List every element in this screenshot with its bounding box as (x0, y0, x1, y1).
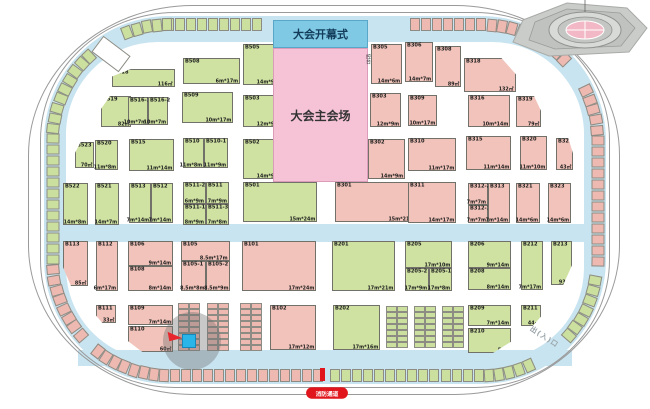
perimeter-stall (591, 146, 604, 156)
perimeter-stall (452, 369, 462, 382)
perimeter-stall (175, 18, 185, 31)
booth-B305[interactable]: B30514m*6m (371, 44, 402, 84)
booth-code: B211 (523, 305, 538, 311)
booth-B511[interactable]: B5117m*9m (206, 182, 229, 204)
perimeter-stall (591, 223, 604, 233)
booth-dimensions: 70㎡ (81, 161, 92, 168)
booth-code: B513 (131, 183, 146, 189)
stall-cell (425, 342, 436, 348)
booth-code: B316 (470, 95, 485, 101)
perimeter-stall (162, 18, 172, 31)
booth-dimensions: 7m*17m (518, 284, 541, 290)
booth-B303[interactable]: B30312m*9m (370, 93, 401, 127)
booth-B313[interactable]: B3137m*14m (488, 183, 510, 223)
booth-dimensions: 7m*14m (486, 320, 509, 326)
perimeter-stall (280, 369, 290, 382)
booth-dimensions: 8.5m*9m (204, 285, 228, 291)
booth-code: B503 (245, 95, 260, 101)
booth-code: B108 (130, 266, 145, 272)
booth-B312-2[interactable]: B312-27m*7m (468, 183, 488, 205)
perimeter-stall (443, 18, 453, 31)
perimeter-stall (363, 369, 373, 382)
perimeter-stall (484, 368, 495, 382)
booth-dimensions: 7m*14m (485, 217, 508, 223)
booth-code: B110 (130, 326, 145, 332)
stall-cell (414, 342, 425, 348)
stall-cell (386, 342, 397, 348)
booth-B102[interactable]: B10217m*12m (270, 305, 316, 350)
booth-code: B105 (183, 241, 198, 247)
booth-code: B109 (130, 305, 145, 311)
perimeter-stall (46, 178, 59, 188)
location-arrow-icon (167, 331, 184, 344)
booth-B101[interactable]: B10117m*24m (242, 241, 316, 291)
booth-B321[interactable]: B32114m*6m (516, 183, 540, 223)
booth-code: B106 (130, 241, 145, 247)
perimeter-stall (252, 18, 262, 31)
perimeter-stall (181, 369, 191, 382)
booth-B510-1[interactable]: B510-111m*9m (204, 138, 228, 168)
perimeter-stall (410, 18, 420, 31)
perimeter-stall (186, 18, 196, 31)
booth-code: B202 (335, 305, 350, 311)
booth-B301[interactable]: B30115m*21m (335, 182, 416, 222)
booth-code: B105-2 (208, 261, 228, 267)
booth-code: B205-1 (431, 268, 451, 274)
booth-code: B112 (98, 241, 113, 247)
booth-code: B209 (470, 305, 485, 311)
perimeter-stall (46, 244, 59, 254)
booth-B201[interactable]: B20117m*21m (332, 241, 395, 291)
perimeter-stall (208, 18, 218, 31)
perimeter-stall (241, 18, 251, 31)
booth-dimensions: 10m*7m (123, 119, 146, 125)
booth-B205[interactable]: B20517m*10m (405, 241, 452, 268)
booth-B212[interactable]: B2127m*17m (521, 241, 543, 290)
perimeter-stall (591, 235, 604, 245)
perimeter-stall (46, 211, 59, 221)
booth-dimensions: 11m*14m (483, 164, 509, 170)
booth-code: B206 (470, 241, 485, 247)
booth-code: B306 (407, 42, 422, 48)
main-hall-area[interactable]: 大会主会场 (273, 48, 368, 182)
booth-dimensions: 7m*14m (126, 217, 149, 223)
booth-code: B319 (518, 96, 533, 102)
booth-dimensions: 8.5m*8m (180, 285, 204, 291)
booth-B208[interactable]: B2088m*14m (468, 268, 511, 290)
perimeter-stall (197, 18, 207, 31)
booth-dimensions: 10m*17m (409, 120, 435, 126)
booth-code: B101 (244, 241, 259, 247)
perimeter-stall (214, 369, 224, 382)
booth-dimensions: 7m*14m (148, 217, 171, 223)
booth-dimensions: 89㎡ (448, 80, 459, 87)
booth-code: B111 (98, 305, 113, 311)
booth-B202[interactable]: B20217m*16m (333, 305, 380, 350)
booth-code: B318 (466, 58, 481, 64)
booth-B316[interactable]: B31610m*14m (468, 95, 510, 127)
perimeter-stall (46, 156, 59, 166)
perimeter-stall (454, 18, 464, 31)
perimeter-stall (432, 18, 442, 31)
perimeter-stall (46, 167, 59, 177)
booth-code: B201 (334, 241, 349, 247)
booth-dimensions: 14m*17m (428, 217, 454, 223)
booth-code: B102 (272, 305, 287, 311)
booth-dimensions: 11m*9m (203, 162, 226, 168)
booth-B511-1[interactable]: B511-18m*9m (183, 204, 206, 225)
booth-dimensions: 11m*14m (146, 165, 172, 171)
booth-dimensions: 7m*7m (467, 217, 486, 223)
booth-dimensions: 11m*8m (179, 162, 202, 168)
booth-dimensions: 15m*24m (289, 216, 315, 222)
booth-B302[interactable]: B30214m*9m (368, 139, 405, 179)
booth-code: B509 (184, 92, 199, 98)
booth-B510[interactable]: B51011m*8m (183, 138, 204, 168)
booth-code: B510 (185, 138, 200, 144)
perimeter-stall (219, 18, 229, 31)
perimeter-stall (46, 222, 59, 232)
booth-B105-1[interactable]: B105-18.5m*8m (181, 261, 206, 291)
booth-code: B511-2 (185, 182, 205, 188)
perimeter-stall (591, 179, 604, 189)
booth-dimensions: 14m*7m (408, 76, 431, 82)
perimeter-stall (46, 133, 59, 143)
stall-cell (442, 342, 453, 348)
booth-code: B320 (522, 136, 537, 142)
booth-B501[interactable]: B50115m*24m (243, 182, 317, 222)
booth-code: B516-2 (150, 97, 170, 103)
booth-dimensions: 79㎡ (528, 120, 539, 127)
perimeter-stall (236, 369, 246, 382)
booth-code: B520 (97, 140, 112, 146)
control-desk-label: 控台 (364, 54, 371, 80)
perimeter-stall (474, 369, 484, 382)
booth-dimensions: 14m*6m (515, 217, 538, 223)
booth-B520[interactable]: B52011m*8m (95, 140, 118, 170)
booth-dimensions: 12m*9m (376, 121, 399, 127)
perimeter-stall (352, 369, 362, 382)
booth-code: B313 (490, 183, 505, 189)
perimeter-stall (46, 233, 59, 243)
booth-B509[interactable]: B50910m*17m (182, 92, 233, 123)
booth-dimensions: 8m*14m (148, 285, 171, 291)
perimeter-stall (493, 367, 505, 381)
booth-code: B510-1 (206, 138, 226, 144)
perimeter-stall (269, 369, 279, 382)
perimeter-stall (591, 256, 604, 266)
booth-code: B113 (65, 241, 80, 247)
booth-dimensions: 85㎡ (75, 279, 86, 286)
booth-dimensions: 14m*7m (94, 219, 117, 225)
stall-cell (453, 342, 464, 348)
perimeter-stall (385, 369, 395, 382)
booth-code: B105-1 (183, 261, 203, 267)
booth-code: B205 (407, 241, 422, 247)
booth-B315[interactable]: B31511m*14m (466, 136, 511, 170)
booth-B109[interactable]: B1097m*14m (128, 305, 173, 325)
booth-code: B301 (337, 182, 352, 188)
booth-dimensions: 8m*14m (486, 284, 509, 290)
booth-B516-2[interactable]: B516-210m*7m (148, 97, 168, 125)
perimeter-stall (591, 246, 604, 256)
booth-B515[interactable]: B51511m*14m (129, 139, 174, 171)
perimeter-stall (418, 369, 428, 382)
booth-dimensions: 10m*14m (482, 121, 508, 127)
booth-B205-1[interactable]: B205-117m*8m (429, 268, 452, 291)
perimeter-stall (591, 168, 604, 178)
perimeter-stall (591, 201, 604, 211)
booth-dimensions: 17m*9m (404, 285, 427, 291)
booth-dimensions: 14m*6m (377, 78, 400, 84)
fire-lane-gate-marker (320, 368, 325, 381)
perimeter-stall (291, 369, 301, 382)
perimeter-stall (46, 264, 60, 275)
perimeter-stall (46, 145, 59, 155)
booth-dimensions: 11m*17m (428, 165, 454, 171)
perimeter-stall (476, 18, 486, 31)
booth-B205-2[interactable]: B205-217m*9m (405, 268, 429, 291)
perimeter-stall (341, 369, 351, 382)
booth-B106[interactable]: B1069m*14m (128, 241, 173, 266)
booth-code: B323 (550, 183, 565, 189)
stall-cell (240, 345, 251, 351)
booth-B112[interactable]: B1126m*17m (96, 241, 118, 291)
booth-dimensions: 17m*8m (427, 285, 450, 291)
booth-B320[interactable]: B32011m*10m (520, 136, 547, 170)
booth-dimensions: 17m*16m (352, 344, 378, 350)
perimeter-stall (170, 369, 180, 382)
booth-dimensions: 116㎡ (158, 80, 173, 87)
perimeter-stall (247, 369, 257, 382)
perimeter-stall (230, 18, 240, 31)
perimeter-stall (46, 200, 59, 210)
perimeter-stall (429, 369, 439, 382)
perimeter-stall (151, 18, 162, 32)
booth-B508[interactable]: B5086m*17m (183, 58, 240, 84)
booth-B105-2[interactable]: B105-28.5m*9m (206, 261, 230, 291)
perimeter-stall (225, 369, 235, 382)
booth-dimensions: 6m*17m (215, 78, 238, 84)
booth-dimensions: 10m*17m (205, 117, 231, 123)
perimeter-stall (148, 367, 160, 381)
booth-code: B309 (410, 95, 425, 101)
perimeter-stall (591, 190, 604, 200)
booth-B323[interactable]: B32314m*6m (548, 183, 571, 223)
booth-B522[interactable]: B52214m*8m (63, 183, 88, 225)
booth-code: B505 (245, 44, 260, 50)
booth-dimensions: 132㎡ (499, 85, 514, 92)
booth-dimensions: 14m*6m (546, 217, 569, 223)
perimeter-stall (330, 369, 340, 382)
highlighted-booth[interactable] (182, 334, 196, 348)
booth-code: B511 (208, 182, 223, 188)
booth-code: B208 (470, 268, 485, 274)
perimeter-stall (192, 369, 202, 382)
booth-B306[interactable]: B30614m*7m (405, 42, 433, 82)
booth-dimensions: 8m*9m (185, 219, 204, 225)
perimeter-stall (302, 369, 312, 382)
booth-code: B512 (153, 183, 168, 189)
perimeter-stall (465, 18, 475, 31)
perimeter-stall (258, 369, 268, 382)
booth-B521[interactable]: B52114m*7m (95, 183, 119, 225)
perimeter-stall (441, 369, 451, 382)
booth-code: B315 (468, 136, 483, 142)
perimeter-stall (159, 369, 170, 382)
booth-B209[interactable]: B2097m*14m (468, 305, 511, 326)
stall-cell (251, 345, 262, 351)
booth-dimensions: 14m*9m (380, 173, 403, 179)
booth-code: B210 (470, 328, 485, 334)
fire-lane-badge: 消防通道 (306, 387, 348, 398)
perimeter-stall (396, 369, 406, 382)
booth-dimensions: 17m*24m (288, 285, 314, 291)
booth-B309[interactable]: B30910m*17m (408, 95, 437, 126)
booth-code: B511-1 (185, 204, 205, 210)
booth-dimensions: 14m*8m (63, 219, 86, 225)
perimeter-stall (591, 157, 604, 167)
perimeter-stall (421, 18, 431, 31)
booth-code: B502 (245, 139, 260, 145)
perimeter-stall (47, 274, 62, 286)
booth-dimensions: 11m*8m (93, 164, 116, 170)
perimeter-stall (591, 135, 604, 145)
booth-code: B522 (65, 183, 80, 189)
perimeter-stall (463, 369, 473, 382)
booth-code: B511-3 (208, 204, 228, 210)
booth-code: B515 (131, 139, 146, 145)
booth-dimensions: 7m*8m (208, 219, 227, 225)
booth-B511-2[interactable]: B511-26m*9m (183, 182, 206, 204)
booth-code: B310 (410, 138, 425, 144)
booth-dimensions: 10m*7m (143, 119, 166, 125)
booth-code: B311 (410, 182, 425, 188)
booth-B105[interactable]: B1058.5m*17m (181, 241, 230, 261)
booth-B311[interactable]: B31114m*17m (408, 182, 456, 223)
venue-floorplan: B518116㎡B5086m*17mB50514m*9mB51982㎡B516-… (0, 0, 650, 409)
booth-code: B212 (523, 241, 538, 247)
perimeter-stall (46, 189, 59, 199)
perimeter-stall (203, 369, 213, 382)
booth-code: B305 (373, 44, 388, 50)
booth-B310[interactable]: B31011m*17m (408, 138, 456, 171)
booth-B108[interactable]: B1088m*14m (128, 266, 173, 291)
stadium-3d-inset (505, 0, 650, 60)
booth-code: B321 (518, 183, 533, 189)
booth-dimensions: 33㎡ (103, 316, 114, 323)
booth-B511-3[interactable]: B511-37m*8m (206, 204, 229, 225)
stall-cell (397, 342, 408, 348)
booth-dimensions: 17m*12m (288, 344, 314, 350)
booth-code: B302 (370, 139, 385, 145)
booth-code: B521 (97, 183, 112, 189)
booth-code: B501 (245, 182, 260, 188)
perimeter-stall (46, 255, 59, 265)
booth-B206[interactable]: B2069m*14m (468, 241, 511, 268)
perimeter-stall (374, 369, 384, 382)
booth-code: B303 (372, 93, 387, 99)
perimeter-stall (590, 124, 604, 135)
booth-dimensions: 11m*10m (519, 164, 545, 170)
booth-B512[interactable]: B5127m*14m (151, 183, 173, 223)
booth-code: B213 (553, 241, 568, 247)
booth-code: B205-2 (407, 268, 427, 274)
booth-dimensions: 43㎡ (560, 163, 571, 170)
booth-code: B308 (437, 46, 452, 52)
booth-code: B508 (185, 58, 200, 64)
booth-dimensions: 17m*21m (367, 285, 393, 291)
booth-dimensions: 6m*17m (93, 285, 116, 291)
opening-ceremony-area[interactable]: 大会开幕式 (273, 20, 368, 48)
perimeter-stall (591, 212, 604, 222)
perimeter-stall (407, 369, 417, 382)
booth-B308[interactable]: B30889㎡ (435, 46, 461, 87)
